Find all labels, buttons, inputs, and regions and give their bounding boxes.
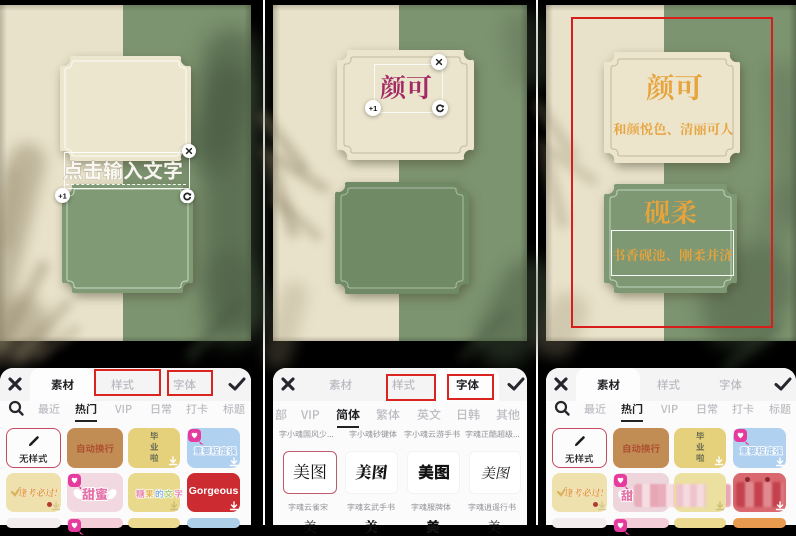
svg-text:+1: +1 [58, 192, 67, 201]
svg-text:+1: +1 [368, 104, 377, 113]
